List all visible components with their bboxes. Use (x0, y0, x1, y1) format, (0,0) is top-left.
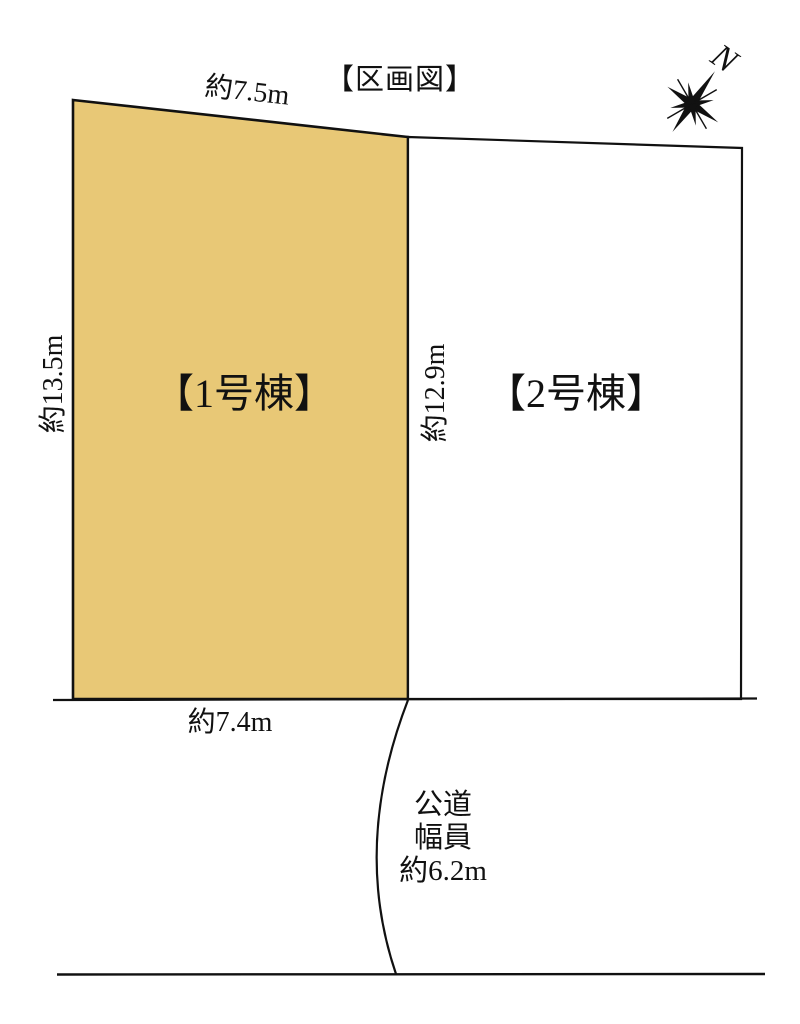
page-title: 【区画図】 (0, 56, 800, 98)
road-width-value: 約6.2m (343, 855, 543, 888)
frontage-line (53, 699, 757, 701)
road-far-edge-line (57, 974, 765, 975)
plot-map-page: N 【区画図】 約7.5m 約13.5m 約12.9m 約7.4m 【1号棟】 … (0, 0, 800, 1024)
lot-2-label: 【2号棟】 (426, 368, 726, 420)
dimension-lot1-left: 約13.5m (38, 314, 70, 454)
road-annotation: 公道 幅員 約6.2m (343, 789, 543, 888)
road-name: 公道 (343, 789, 543, 822)
lot-1-label: 【1号棟】 (94, 368, 394, 420)
road-width-label: 幅員 (343, 822, 543, 855)
dimension-lot1-bottom: 約7.4m (160, 707, 300, 739)
